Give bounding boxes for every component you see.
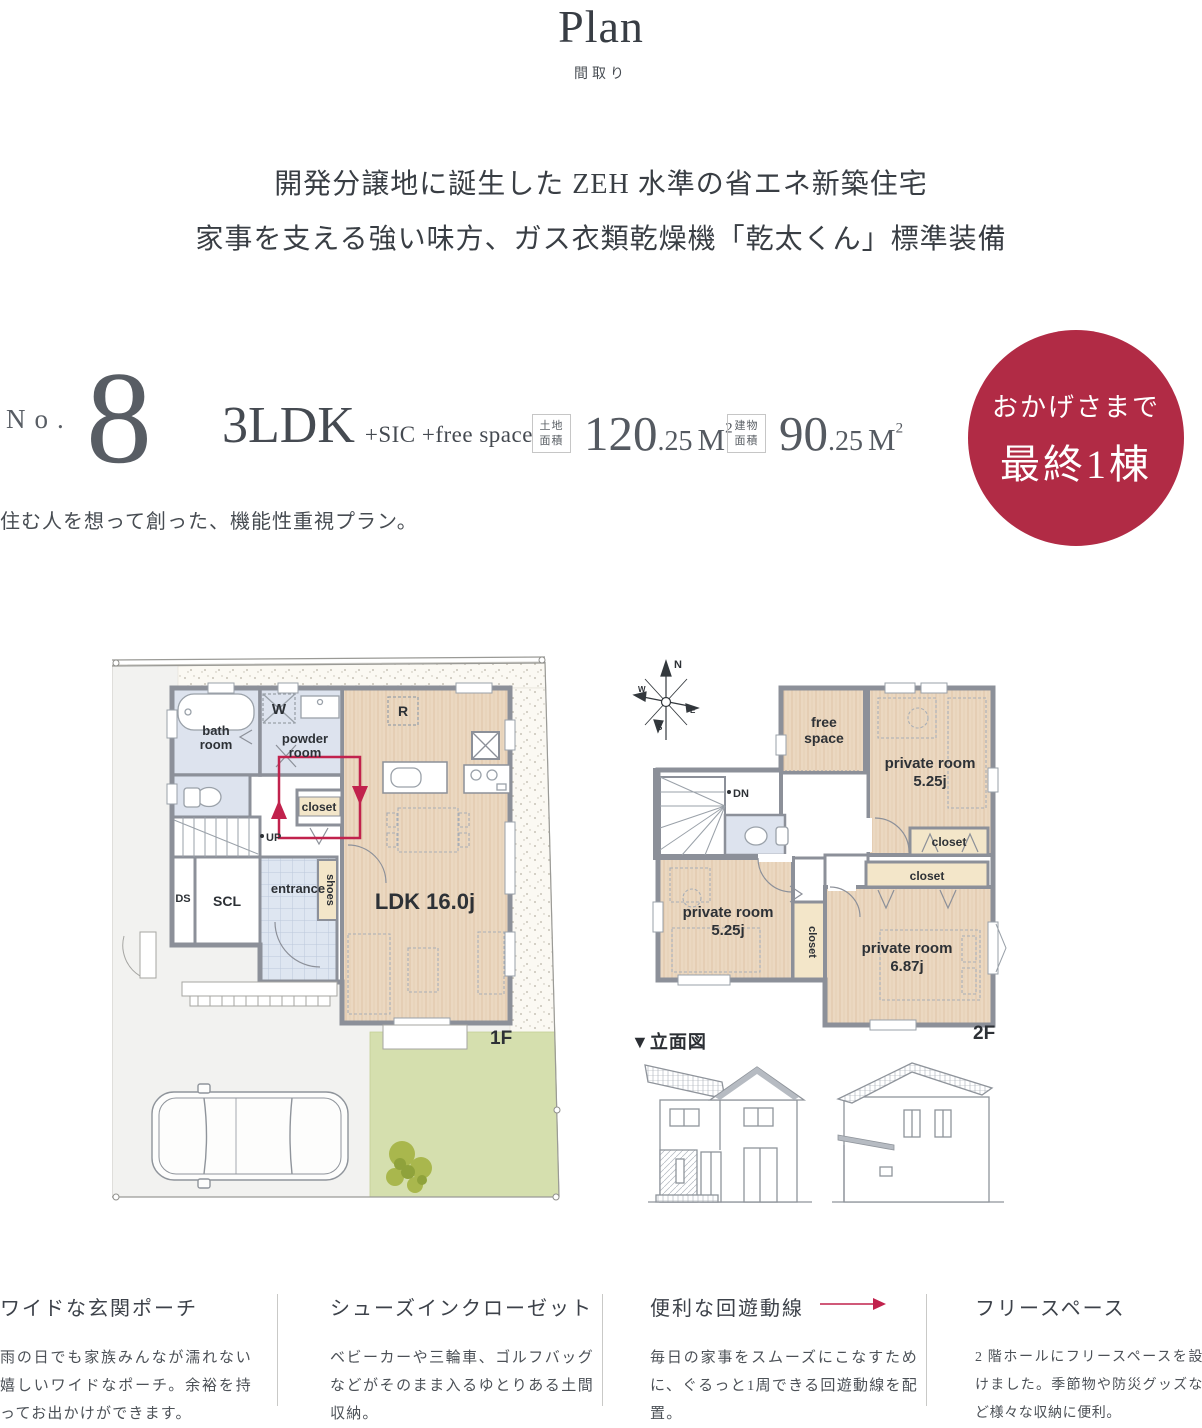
label-closet1: closet	[932, 835, 967, 849]
car-icon	[152, 1084, 348, 1188]
plan-no-value: 8	[86, 352, 152, 484]
up-dot	[260, 834, 264, 838]
floor-plan-1f: bath room W powder room closet UP DS SCL…	[112, 632, 568, 1213]
building-area: 建物面積 90.25M2	[727, 409, 903, 458]
feature-circulation-title: 便利な回遊動線	[650, 1292, 918, 1321]
feature-shoes-closet-title: シューズインクローゼット	[330, 1292, 594, 1321]
label-private3: private room	[862, 940, 953, 957]
feature-porch-body: 雨の日でも家族みんなが濡れない嬉しいワイドなポーチ。余裕を持ってお出かけができま…	[0, 1344, 252, 1428]
flow-arrow-icon	[820, 1294, 886, 1317]
svg-text:5.25j: 5.25j	[913, 773, 946, 790]
svg-text:5.25j: 5.25j	[711, 922, 744, 939]
divider-2	[602, 1294, 603, 1406]
plan-type-suffix: +SIC +free space	[365, 422, 533, 447]
gravel-strip-right	[510, 688, 555, 1032]
elevation-side	[832, 1063, 1004, 1202]
land-area-label: 土地面積	[532, 414, 571, 453]
divider-1	[277, 1294, 278, 1406]
building-area-label: 建物面積	[727, 414, 766, 453]
compass-s: S	[657, 723, 663, 732]
last-unit-badge: おかげさまで 最終1棟	[968, 330, 1184, 546]
label-closet-vertical: closet	[806, 926, 818, 958]
label-private2: private room	[683, 904, 774, 921]
lead-line1: 開発分譲地に誕生した ZEH 水準の省エネ新築住宅	[0, 157, 1202, 212]
page-subtitle: 間取り	[0, 63, 1202, 83]
label-powder: powder	[282, 731, 328, 746]
page-title: Plan	[0, 0, 1202, 53]
label-refrigerator: R	[398, 703, 408, 719]
plan-no-label: No.	[6, 404, 73, 435]
label-floor-2f: 2F	[973, 1023, 995, 1042]
land-area-value: 120.25M2	[584, 409, 733, 458]
label-bath: bath	[202, 723, 230, 738]
label-ds: DS	[175, 893, 190, 905]
label-shoes: shoes	[324, 874, 336, 906]
svg-text:space: space	[804, 730, 844, 746]
feature-circulation: 便利な回遊動線 毎日の家事をスムーズにこなすために、ぐるっと1周できる回遊動線を…	[650, 1292, 918, 1428]
label-up: UP	[266, 832, 281, 844]
label-free-space: free	[811, 714, 837, 730]
label-entrance: entrance	[271, 881, 325, 896]
plan-type-main: 3LDK	[222, 397, 355, 454]
feature-shoes-closet: シューズインクローゼット ベビーカーや三輪車、ゴルフバッグなどがそのまま入るゆと…	[330, 1292, 594, 1428]
feature-free-space-body: 2 階ホールにフリースペースを設けました。季節物や防災グッズなど様々な収納に便利…	[975, 1344, 1202, 1428]
land-area: 土地面積 120.25M2	[532, 409, 733, 458]
feature-porch: ワイドな玄関ポーチ 雨の日でも家族みんなが濡れない嬉しいワイドなポーチ。余裕を持…	[0, 1292, 252, 1428]
elevation-label: ▼立面図	[631, 1028, 707, 1054]
label-closet2: closet	[910, 869, 945, 883]
feature-circulation-body: 毎日の家事をスムーズにこなすために、ぐるっと1周できる回遊動線を配置。	[650, 1344, 918, 1428]
plan-tagline: 住む人を想って創った、機能性重視プラン。	[0, 505, 418, 534]
label-washer: W	[272, 701, 287, 718]
svg-text:6.87j: 6.87j	[890, 958, 923, 975]
feature-shoes-closet-body: ベビーカーや三輪車、ゴルフバッグなどがそのまま入るゆとりある土間収納。	[330, 1344, 594, 1428]
building-area-value: 90.25M2	[779, 409, 903, 458]
label-private1: private room	[885, 755, 976, 772]
label-scl: SCL	[213, 893, 241, 909]
feature-free-space: フリースペース 2 階ホールにフリースペースを設けました。季節物や防災グッズなど…	[975, 1292, 1202, 1428]
hall-finger	[825, 855, 868, 887]
svg-text:room: room	[289, 745, 322, 760]
feature-free-space-title: フリースペース	[975, 1292, 1202, 1321]
divider-3	[926, 1294, 927, 1406]
plan-type: 3LDK+SIC +free space	[222, 396, 533, 455]
label-dn: DN	[733, 788, 749, 800]
lead-copy: 開発分譲地に誕生した ZEH 水準の省エネ新築住宅 家事を支える強い味方、ガス衣…	[0, 157, 1202, 267]
label-floor-1f: 1F	[490, 1028, 512, 1049]
floor-plan-2f: N W E S	[630, 640, 1010, 1047]
elevation-drawings	[640, 1055, 1015, 1215]
elevation-front	[645, 1065, 812, 1202]
terrace-step	[383, 1025, 467, 1049]
label-ldk: LDK 16.0j	[375, 889, 475, 914]
lead-line2: 家事を支える強い味方、ガス衣類乾燥機「乾太くん」標準装備	[0, 212, 1202, 267]
svg-text:room: room	[200, 737, 233, 752]
compass-icon	[634, 661, 698, 740]
compass-n: N	[674, 659, 682, 671]
label-closet-1f: closet	[302, 800, 337, 814]
compass-e: E	[690, 706, 696, 715]
side-canopy	[140, 932, 156, 978]
plan-page: { "header": { "title": "Plan", "subtitle…	[0, 0, 1202, 1420]
feature-porch-title: ワイドな玄関ポーチ	[0, 1292, 252, 1321]
dn-dot	[727, 790, 731, 794]
compass-w: W	[638, 685, 646, 694]
